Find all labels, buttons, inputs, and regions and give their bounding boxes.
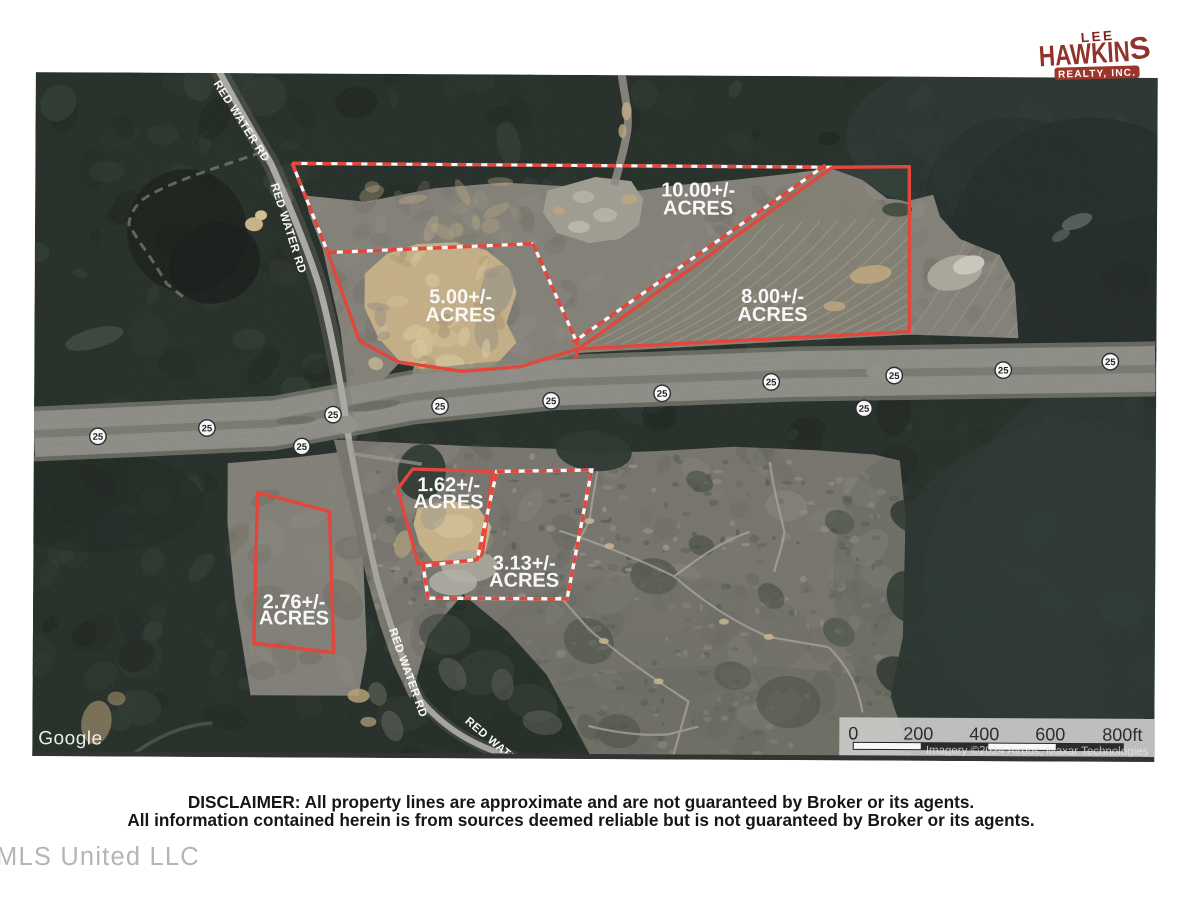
svg-text:S: S (1127, 29, 1153, 67)
svg-text:REALTY, INC.: REALTY, INC. (1058, 68, 1136, 81)
